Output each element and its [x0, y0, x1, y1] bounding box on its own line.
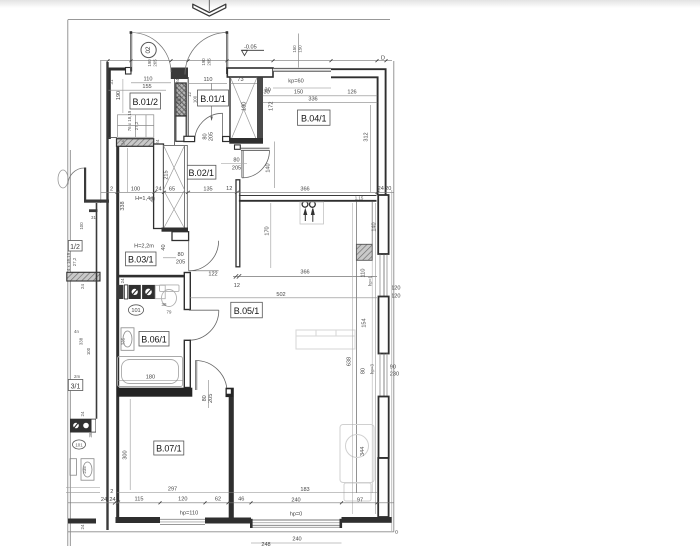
svg-text:140: 140 [372, 222, 378, 231]
svg-text:79: 79 [167, 310, 172, 315]
svg-text:297: 297 [168, 487, 177, 493]
svg-text:27,2: 27,2 [72, 257, 77, 266]
svg-text:40: 40 [150, 196, 156, 202]
svg-text:180: 180 [146, 374, 155, 380]
svg-text:2m: 2m [74, 374, 80, 379]
svg-text:100: 100 [193, 95, 198, 103]
svg-text:B.01/1: B.01/1 [200, 94, 226, 104]
svg-text:366: 366 [300, 187, 309, 193]
svg-text:205: 205 [209, 132, 215, 141]
svg-text:172: 172 [269, 102, 275, 111]
svg-text:90: 90 [390, 365, 396, 371]
svg-text:183: 183 [300, 487, 309, 493]
svg-text:155: 155 [142, 84, 151, 90]
svg-text:344: 344 [360, 447, 366, 456]
svg-text:205: 205 [208, 394, 214, 403]
svg-text:190: 190 [201, 58, 206, 66]
svg-text:122: 122 [208, 272, 217, 278]
svg-text:205: 205 [176, 260, 185, 266]
svg-text:B.06/1: B.06/1 [141, 335, 167, 345]
svg-text:80: 80 [177, 252, 183, 258]
svg-text:hp=1: hp=1 [367, 275, 372, 285]
svg-text:hp=3: hp=3 [370, 363, 375, 373]
svg-text:240: 240 [291, 498, 300, 504]
svg-text:24: 24 [80, 411, 85, 416]
svg-text:205: 205 [232, 166, 241, 172]
svg-text:4 x 18,19: 4 x 18,19 [66, 252, 71, 271]
svg-text:312: 312 [364, 132, 370, 141]
svg-text:336: 336 [308, 96, 317, 102]
svg-text:1/2: 1/2 [70, 244, 80, 251]
svg-text:76 x 18,19: 76 x 18,19 [127, 110, 132, 131]
svg-text:24: 24 [121, 140, 126, 145]
svg-text:638: 638 [347, 357, 353, 366]
svg-text:80: 80 [202, 395, 208, 401]
svg-text:240: 240 [292, 537, 301, 543]
svg-text:97: 97 [357, 498, 363, 504]
svg-text:1.15: 1.15 [355, 196, 364, 201]
svg-text:115: 115 [135, 496, 144, 502]
svg-text:502: 502 [276, 292, 285, 298]
svg-text:38: 38 [162, 302, 167, 307]
svg-text:31: 31 [91, 215, 96, 220]
svg-text:190: 190 [116, 91, 122, 100]
svg-text:hp=0: hp=0 [290, 512, 303, 518]
svg-text:190: 190 [147, 59, 152, 67]
svg-text:24: 24 [109, 497, 115, 503]
svg-text:B.01/2: B.01/2 [132, 97, 158, 107]
svg-text:80: 80 [361, 368, 367, 374]
svg-text:H=2,2m: H=2,2m [134, 244, 154, 250]
svg-text:170: 170 [265, 226, 271, 235]
svg-text:kp=60: kp=60 [288, 78, 303, 84]
svg-text:73: 73 [237, 77, 243, 83]
svg-text:140: 140 [265, 163, 271, 172]
svg-text:265: 265 [207, 58, 212, 66]
svg-text:24: 24 [101, 497, 107, 503]
svg-text:24: 24 [80, 524, 85, 529]
svg-text:65: 65 [169, 186, 175, 192]
svg-text:24: 24 [155, 139, 160, 144]
svg-text:100: 100 [86, 347, 91, 355]
svg-text:30: 30 [264, 88, 270, 94]
svg-text:161: 161 [177, 95, 183, 104]
svg-text:338: 338 [120, 201, 126, 210]
svg-text:62: 62 [215, 496, 221, 502]
svg-text:24: 24 [175, 78, 180, 83]
svg-text:20: 20 [385, 186, 391, 192]
svg-text:150: 150 [297, 45, 302, 53]
svg-text:110: 110 [144, 77, 153, 83]
svg-text:265: 265 [153, 59, 158, 67]
svg-text:24: 24 [80, 284, 85, 289]
svg-text:B.05/1: B.05/1 [234, 306, 260, 316]
svg-text:24: 24 [120, 278, 125, 283]
svg-text:215: 215 [163, 170, 169, 179]
svg-text:O: O [395, 530, 399, 535]
svg-text:12: 12 [187, 92, 192, 97]
svg-text:110: 110 [204, 77, 213, 83]
svg-text:12: 12 [226, 186, 232, 192]
svg-text:248: 248 [261, 542, 270, 546]
svg-text:120: 120 [178, 496, 187, 502]
svg-text:2: 2 [110, 489, 113, 495]
svg-text:hp=110: hp=110 [180, 510, 198, 516]
svg-text:31: 31 [109, 79, 114, 84]
svg-text:110: 110 [360, 269, 366, 278]
svg-text:B.04/1: B.04/1 [301, 114, 327, 124]
svg-text:101: 101 [131, 308, 140, 314]
svg-text:235: 235 [82, 466, 87, 474]
svg-text:D: D [381, 56, 385, 62]
svg-text:B.07/1: B.07/1 [156, 444, 182, 454]
svg-text:80: 80 [233, 157, 239, 163]
svg-text:100: 100 [79, 222, 84, 230]
svg-text:190: 190 [242, 102, 248, 111]
svg-text:120: 120 [391, 294, 400, 300]
svg-text:2: 2 [110, 186, 113, 192]
svg-text:27,2: 27,2 [134, 121, 139, 130]
svg-text:4n: 4n [74, 329, 79, 334]
svg-text:40: 40 [161, 244, 167, 250]
svg-text:366: 366 [300, 269, 309, 275]
svg-text:338: 338 [79, 337, 84, 345]
svg-text:46: 46 [238, 496, 244, 502]
svg-text:300: 300 [122, 450, 128, 459]
svg-text:101: 101 [75, 442, 83, 447]
svg-text:150: 150 [292, 45, 297, 53]
svg-text:154: 154 [361, 318, 367, 327]
svg-text:12: 12 [234, 283, 240, 289]
svg-text:120: 120 [391, 286, 400, 292]
svg-text:36: 36 [88, 432, 93, 437]
svg-text:02: 02 [145, 46, 152, 53]
svg-text:B.03/1: B.03/1 [128, 255, 154, 265]
svg-text:B.02/1: B.02/1 [188, 168, 214, 178]
svg-text:-0.05: -0.05 [244, 45, 257, 51]
svg-text:230: 230 [390, 372, 399, 378]
svg-text:3/1: 3/1 [71, 383, 81, 390]
svg-text:126: 126 [347, 90, 356, 96]
svg-text:150: 150 [294, 90, 303, 96]
svg-text:135: 135 [203, 186, 212, 192]
svg-text:100: 100 [131, 186, 140, 192]
